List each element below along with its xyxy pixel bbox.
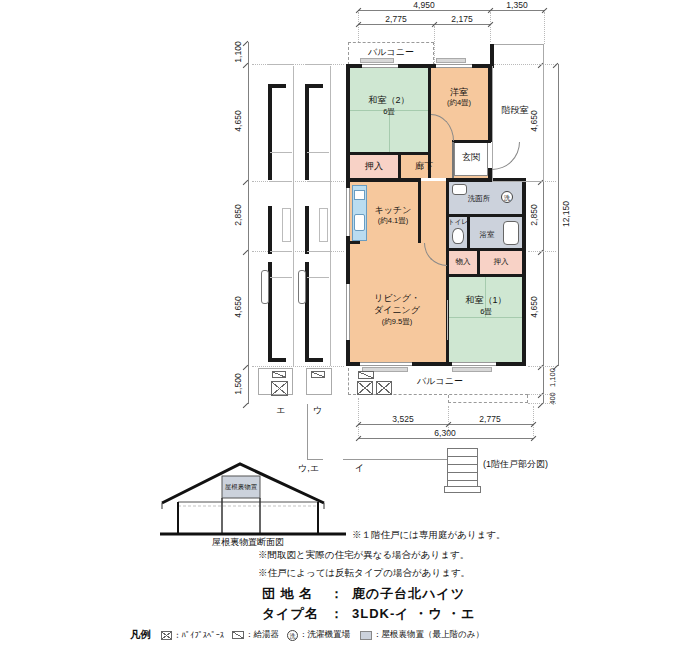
- stairwell-label: 階段室: [502, 106, 529, 115]
- dim-top-total: 4,950: [413, 0, 434, 10]
- bathtub-icon: [503, 221, 519, 245]
- living-label-1: リビング・: [374, 294, 420, 303]
- wall: [305, 206, 309, 254]
- wall: [346, 178, 421, 182]
- wall: [268, 84, 286, 88]
- dim-tick: [243, 403, 249, 409]
- wall-bay-mark: [261, 270, 269, 304]
- tatami-line: [449, 317, 522, 318]
- counter-outline: [319, 208, 328, 242]
- balcony-bottom-step: [448, 395, 528, 403]
- stairs-base: [444, 486, 481, 493]
- dim-left-upper: 4,650: [233, 99, 243, 143]
- senmenjo-label: 洗面所: [468, 195, 491, 203]
- legend-laundry-label: ：洗濯機置場: [299, 629, 350, 641]
- extension-line: [434, 26, 435, 64]
- extension-line: [252, 366, 344, 367]
- unit-outline: [307, 277, 329, 278]
- unit-label-u: ウ: [313, 406, 322, 415]
- note-difference: ※間取図と実際の住宅が異なる場合があります。: [258, 549, 469, 562]
- dim-left-balcony: 1,100: [233, 30, 243, 74]
- dim-bottom-left: 3,525: [392, 414, 413, 424]
- washitsu1-size: 6畳: [480, 308, 492, 316]
- dim-left-middle: 2,850: [233, 193, 243, 237]
- type-name-row: タイプ名 ： 3LDK-イ ・ウ ・エ: [262, 605, 475, 623]
- floor-plan-canvas: 4,950 1,350 2,775 2,175 1,100 4,650 2,85…: [0, 0, 700, 650]
- wall: [452, 140, 491, 143]
- dim-line: [358, 424, 448, 425]
- pipe-space-icon: [271, 381, 288, 396]
- toilet-label: トイレ: [448, 219, 468, 226]
- water-heater-icon: [272, 371, 286, 378]
- bath-label: 浴室: [480, 231, 495, 239]
- washitsu1-label: 和室（1）: [465, 296, 506, 305]
- first-floor-caption: (1階住戸部分図): [483, 460, 548, 469]
- window: [360, 362, 412, 366]
- dim-line: [358, 438, 533, 439]
- wall: [452, 142, 454, 178]
- dim-right-middle: 2,850: [529, 193, 539, 237]
- wall: [490, 44, 494, 66]
- dim-left-lower: 4,650: [233, 285, 243, 329]
- wall: [346, 241, 360, 244]
- unit-outline: [270, 181, 292, 182]
- genkan-label: 玄関: [462, 153, 480, 162]
- legend-pipe-label: ：ﾊﾟｲﾌﾟｽﾍﾟｰｽ: [173, 630, 224, 640]
- toilet-icon: [452, 228, 464, 244]
- dim-right-step: 400: [548, 377, 557, 421]
- extension-line: [528, 394, 556, 395]
- attic-storage-icon: [360, 631, 372, 640]
- type-name-separator: ：: [330, 605, 352, 623]
- wall: [446, 214, 526, 217]
- legend-heater-label: ：給湯器: [245, 629, 279, 641]
- unit-outline: [305, 64, 331, 65]
- sliding-door-mark: [447, 300, 448, 340]
- extension-line: [533, 406, 534, 436]
- section-caption: 屋根裏物置断面図: [212, 538, 284, 547]
- living-label-2: ダイニング: [374, 306, 420, 315]
- monoire-label: 物入: [456, 258, 471, 266]
- wall: [446, 274, 526, 277]
- wall: [346, 152, 428, 155]
- kitchen-label: キッチン: [375, 206, 412, 215]
- extension-line: [448, 406, 449, 436]
- kitchen-stove: [354, 190, 365, 200]
- wall: [305, 358, 323, 362]
- type-name-label: タイプ名: [262, 605, 330, 623]
- youshitsu-label: 洋室: [450, 88, 468, 97]
- extension-line: [358, 12, 359, 42]
- roof-section-drawing: 屋根裏物置: [152, 456, 352, 548]
- window: [346, 284, 350, 340]
- dim-top-stair: 1,350: [506, 0, 527, 10]
- tatami-line: [389, 110, 390, 152]
- dim-line: [490, 10, 544, 11]
- unit-outline: [270, 277, 292, 278]
- extension-line: [528, 366, 556, 367]
- wall: [398, 152, 401, 181]
- wall-bay-mark: [298, 270, 306, 304]
- window: [362, 64, 398, 68]
- water-heater-icon: [358, 371, 374, 379]
- shutter-box: [360, 58, 394, 63]
- water-heater-icon: [232, 631, 244, 639]
- stairs-step: [447, 448, 478, 449]
- water-heater-icon: [311, 371, 325, 378]
- type-name-value: 3LDK-イ ・ウ ・エ: [352, 605, 475, 623]
- extension-line: [490, 12, 491, 42]
- legend-row: 凡例 ：ﾊﾟｲﾌﾟｽﾍﾟｰｽ ：給湯器 洗 ：洗濯機置場 ：屋根裏物置（最上階の…: [130, 628, 484, 642]
- unit-outline: [268, 64, 294, 65]
- wall: [418, 181, 421, 243]
- estate-name-value: 鹿の子台北ハイツ: [352, 585, 465, 603]
- room-rouka-branch: [431, 140, 452, 178]
- dim-tick: [531, 436, 537, 442]
- wall: [446, 248, 526, 251]
- garden-line: [307, 404, 308, 460]
- unit-outline: [330, 66, 331, 366]
- dim-line: [358, 10, 490, 11]
- window: [346, 188, 350, 236]
- washbasin-icon: [452, 184, 467, 195]
- extension-line: [358, 398, 359, 436]
- youshitsu-size: (約4畳): [447, 99, 471, 107]
- estate-name-label: 団 地 名: [262, 585, 330, 603]
- wall: [305, 84, 309, 180]
- pipe-space-icon: [376, 381, 392, 395]
- dim-right-lower: 4,650: [529, 285, 539, 329]
- wall: [305, 84, 323, 88]
- extension-line: [528, 251, 556, 252]
- dim-right-total: 12,150: [561, 192, 571, 236]
- dim-bottom-right: 2,775: [479, 414, 500, 424]
- window: [452, 362, 496, 366]
- unit-outline: [307, 251, 329, 252]
- pipe-space-icon: [161, 631, 172, 640]
- washitsu2-size: 6畳: [383, 108, 395, 116]
- stairs-step: [447, 464, 478, 465]
- dim-line: [434, 24, 490, 25]
- dim-line: [558, 64, 559, 366]
- washing-machine-icon: 洗: [287, 630, 298, 641]
- kitchen-size: (約4.1畳): [378, 217, 408, 225]
- counter-outline: [282, 208, 291, 242]
- legend-attic-label: ：屋根裏物置（最上階のみ）: [373, 629, 484, 641]
- dim-top-left: 2,775: [385, 14, 406, 24]
- estate-name-separator: ：: [330, 585, 352, 603]
- kitchen-sink: [354, 214, 365, 231]
- oshiire-bottom-label: 押入: [494, 258, 509, 266]
- note-garden: ※１階住戸には専用庭があります。: [352, 529, 506, 542]
- dim-line: [248, 42, 249, 404]
- unit-outline: [307, 181, 329, 182]
- living-size: (約9.5畳): [382, 318, 412, 326]
- unit-label-i: イ: [355, 464, 364, 473]
- window: [436, 64, 472, 68]
- balcony-bottom-label: バルコニー: [417, 377, 463, 386]
- dim-left-bottom: 1,500: [233, 362, 243, 406]
- garden-line: [343, 459, 447, 460]
- estate-name-row: 団 地 名 ： 鹿の子台北ハイツ: [262, 585, 465, 603]
- legend-title: 凡例: [130, 628, 151, 642]
- dim-bottom-total: 6,300: [434, 428, 455, 438]
- attic-storage-label: 屋根裏物置: [225, 483, 258, 491]
- wall: [268, 84, 272, 180]
- unit-label-e: エ: [276, 406, 285, 415]
- extension-line: [544, 12, 545, 44]
- wall: [268, 206, 272, 254]
- dim-top-right: 2,175: [451, 14, 472, 24]
- stairs-step: [447, 472, 478, 473]
- pipe-space-icon: [357, 381, 373, 395]
- unit-outline: [270, 152, 292, 153]
- dim-line: [448, 424, 533, 425]
- wall: [268, 358, 286, 362]
- washing-machine-icon: 洗: [501, 191, 513, 203]
- washitsu2-label: 和室（2）: [368, 96, 409, 105]
- dim-line: [543, 366, 544, 404]
- stairs-step: [447, 456, 478, 457]
- balcony-top-label: バルコニー: [368, 48, 414, 57]
- rouka-label: 廊下: [415, 162, 433, 171]
- note-mirrored: ※住戸によっては反転タイプの場合があります。: [258, 567, 470, 580]
- dim-line: [358, 24, 434, 25]
- shutter-box: [436, 58, 466, 63]
- unit-outline: [307, 152, 329, 153]
- stairs-step: [447, 480, 478, 481]
- oshiire-top-label: 押入: [365, 162, 383, 171]
- unit-outline: [270, 251, 292, 252]
- unit-outline: [293, 66, 294, 366]
- extension-line: [528, 403, 556, 404]
